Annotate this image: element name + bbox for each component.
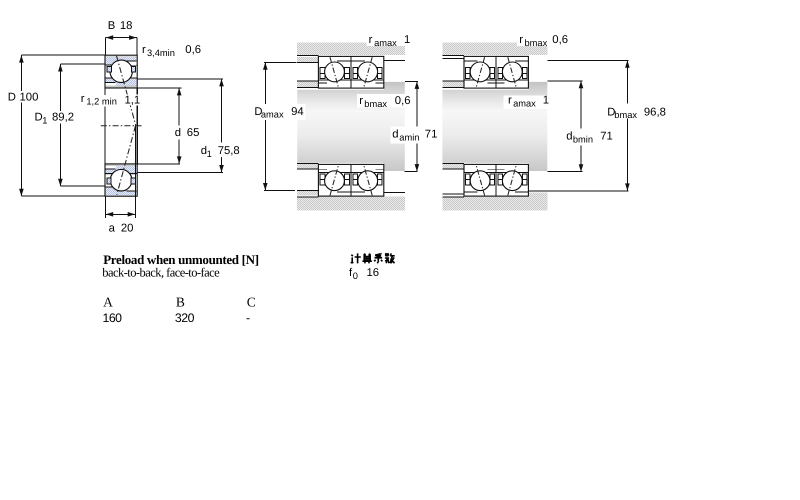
svg-text:16: 16: [367, 267, 380, 279]
svg-text:amin: amin: [399, 132, 419, 142]
svg-text:75,8: 75,8: [218, 145, 240, 157]
svg-text:d: d: [566, 131, 572, 143]
svg-text:0,6: 0,6: [552, 34, 568, 46]
svg-text:1: 1: [207, 149, 212, 159]
svg-text:amax: amax: [374, 38, 397, 48]
svg-text:94: 94: [291, 106, 304, 118]
svg-text:1,2 min: 1,2 min: [86, 97, 117, 107]
svg-text:160: 160: [103, 311, 123, 325]
svg-text:B: B: [108, 20, 116, 32]
svg-text:r: r: [369, 34, 373, 46]
svg-text:20: 20: [121, 222, 134, 234]
svg-text:r: r: [81, 93, 85, 105]
svg-text:A: A: [103, 294, 113, 309]
svg-text:bmax: bmax: [364, 99, 387, 109]
svg-text:D: D: [8, 92, 16, 104]
svg-text:B: B: [176, 294, 185, 309]
svg-text:320: 320: [175, 311, 195, 325]
svg-text:1: 1: [543, 95, 549, 107]
svg-text:back-to-back, face-to-face: back-to-back, face-to-face: [102, 266, 220, 280]
svg-text:d: d: [392, 128, 398, 140]
svg-text:65: 65: [187, 127, 200, 139]
svg-text:0,6: 0,6: [185, 44, 201, 56]
svg-text:r: r: [359, 95, 363, 107]
svg-text:amax: amax: [513, 99, 536, 109]
svg-text:bmax: bmax: [614, 110, 637, 120]
svg-text:a: a: [109, 222, 116, 234]
svg-text:71: 71: [425, 128, 438, 140]
svg-text:3,4min: 3,4min: [147, 48, 175, 58]
svg-text:bmin: bmin: [573, 134, 593, 144]
svg-text:C: C: [247, 294, 256, 309]
svg-text:1: 1: [404, 34, 410, 46]
svg-text:1,1: 1,1: [125, 95, 141, 107]
svg-text:r: r: [508, 95, 512, 107]
svg-text:100: 100: [20, 92, 39, 104]
svg-text:r: r: [519, 34, 523, 46]
svg-text:71: 71: [600, 131, 613, 143]
svg-text:18: 18: [120, 20, 133, 32]
svg-text:0,6: 0,6: [395, 95, 411, 107]
svg-text:1: 1: [42, 115, 47, 125]
svg-text:0: 0: [353, 271, 358, 281]
svg-text:d: d: [175, 127, 181, 139]
svg-text:96,8: 96,8: [644, 106, 666, 118]
svg-text:amax: amax: [261, 110, 284, 120]
svg-text:89,2: 89,2: [52, 112, 74, 124]
svg-text:-: -: [246, 311, 250, 325]
svg-text:bmax: bmax: [525, 38, 548, 48]
svg-text:r: r: [142, 44, 146, 56]
